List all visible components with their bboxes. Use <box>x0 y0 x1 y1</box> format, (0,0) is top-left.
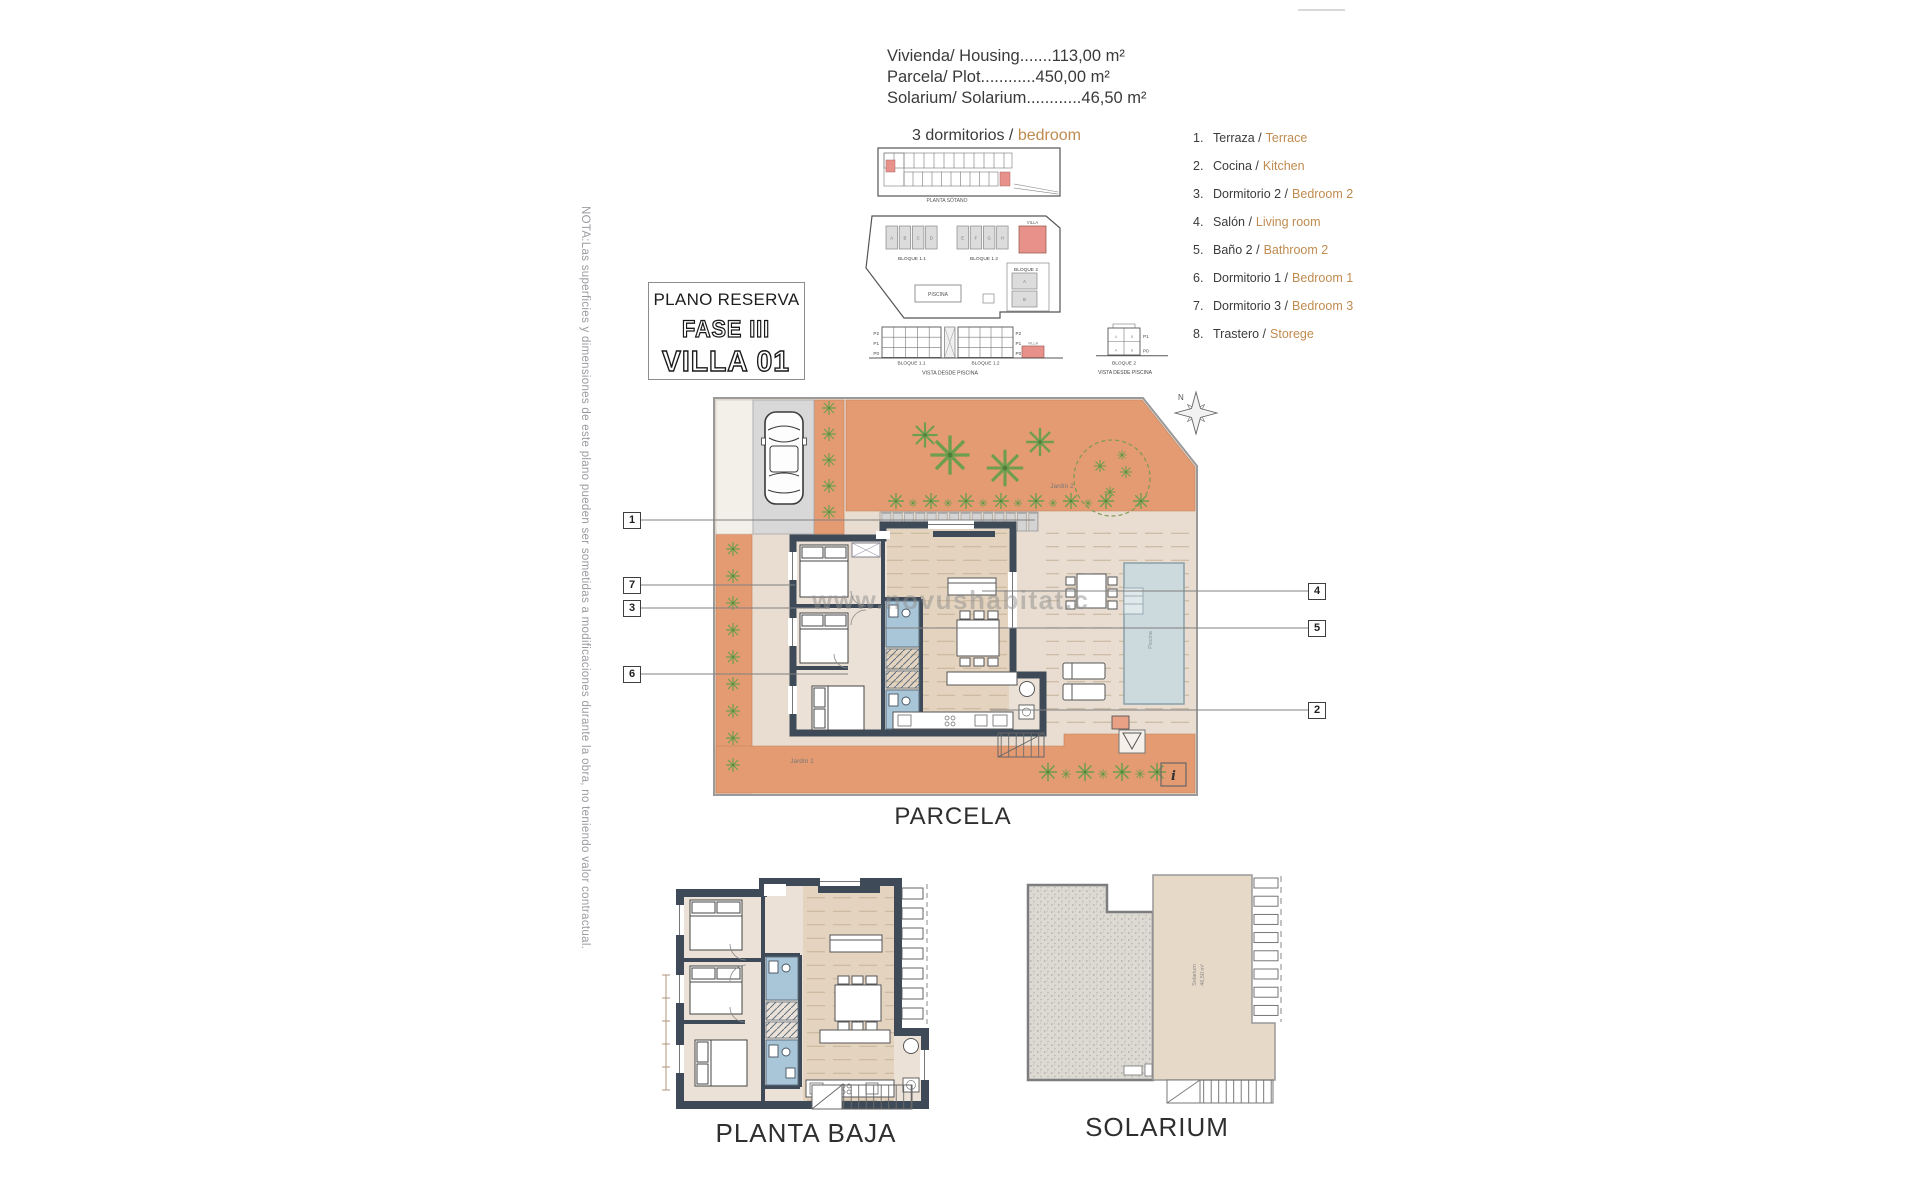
legend-en: Bathroom 2 <box>1264 243 1329 257</box>
floor-label: P1 <box>1016 341 1022 346</box>
unit-letter: B <box>1131 335 1134 339</box>
legend-es: Terraza / <box>1213 131 1262 145</box>
bloque2-label: BLOQUE 2 <box>1112 361 1136 367</box>
piscina-label: PISCINA <box>928 292 949 298</box>
plan-sheet: PLANTA SÓTANO A B C D E F G H BLOQUE <box>0 0 1920 1200</box>
bed <box>695 1040 747 1086</box>
measurement-housing: Vivienda/ Housing.......113,00 m² <box>887 46 1147 67</box>
title-outline-text: FASE III VILLA 01 <box>650 310 803 380</box>
tv-bench <box>933 531 995 537</box>
car-icon <box>762 412 807 504</box>
kitchen-island <box>947 672 1017 685</box>
unit-letter: A <box>1023 279 1026 284</box>
solarium-room-label: Solarium <box>1192 964 1198 986</box>
legend-es: Salón / <box>1213 215 1252 229</box>
pb-sofa <box>830 935 882 952</box>
legend-item: 6.Dormitorio 1 /Bedroom 1 <box>1193 271 1353 299</box>
villa-number-label: VILLA 01 <box>662 346 790 378</box>
legend-en: Storege <box>1270 327 1314 341</box>
unit-letter: A <box>1115 349 1118 353</box>
roof-area <box>1028 885 1153 1080</box>
legend-item: 5.Baño 2 /Bathroom 2 <box>1193 243 1353 271</box>
floor-label: P0 <box>1143 349 1149 354</box>
legend-num: 1. <box>1193 131 1213 145</box>
legend-es: Dormitorio 1 / <box>1213 271 1288 285</box>
legend-es: Dormitorio 3 / <box>1213 299 1288 313</box>
pool-label: Piscina <box>1148 630 1154 649</box>
planta-baja-plan <box>662 877 929 1109</box>
unit-letter: A <box>1115 335 1118 339</box>
bed <box>812 686 864 730</box>
north-compass-icon: N <box>1175 392 1217 434</box>
legend-item: 4.Salón /Living room <box>1193 215 1353 243</box>
disclaimer-note: NOTA:Las superficies y dimensiones de es… <box>579 206 591 949</box>
callout-6: 6 <box>623 666 641 683</box>
legend-item: 8.Trastero /Storege <box>1193 327 1353 355</box>
dimension-ruler <box>662 975 670 1090</box>
legend-item: 2.Cocina /Kitchen <box>1193 159 1353 187</box>
unit-letter: H <box>1001 236 1004 241</box>
unit-letter: G <box>987 236 990 241</box>
bloque11-label: BLOQUE 1.1 <box>898 256 926 262</box>
planta-baja-caption: PLANTA BAJA <box>715 1118 896 1149</box>
floor-label: P1 <box>873 341 879 346</box>
pb-kitchen-island <box>820 1030 890 1043</box>
floor-label: P1 <box>1143 334 1149 339</box>
closet <box>886 649 919 669</box>
sotano-label: PLANTA SÓTANO <box>927 197 968 204</box>
unit-letter: B <box>904 236 907 241</box>
fase-label: FASE III <box>682 316 770 343</box>
closet <box>886 671 919 688</box>
bedrooms-es: 3 dormitorios / <box>912 127 1013 144</box>
unit-letter: F <box>975 236 978 241</box>
legend-num: 6. <box>1193 271 1213 285</box>
bloque11-label: BLOQUE 1.1 <box>898 361 926 367</box>
watermark: www.novushabitat.c <box>812 585 1089 616</box>
pb-dining-table <box>835 976 881 1030</box>
legend-en: Bedroom 2 <box>1292 187 1353 201</box>
parcela-caption: PARCELA <box>894 803 1011 831</box>
house <box>788 520 1043 733</box>
room-legend: 1.Terraza /Terrace 2.Cocina /Kitchen 3.D… <box>1193 131 1353 355</box>
legend-es: Cocina / <box>1213 159 1259 173</box>
bed <box>800 613 848 663</box>
bloque12-label: BLOQUE 1.2 <box>972 361 1000 367</box>
unit-letter: E <box>961 236 964 241</box>
callout-1: 1 <box>623 512 641 529</box>
measurement-solarium: Solarium/ Solarium............46,50 m² <box>887 88 1147 109</box>
floor-label: P0 <box>873 351 879 356</box>
solarium-plan: Solarium 46,50 m² <box>1028 875 1281 1103</box>
mini-plan-sotano: PLANTA SÓTANO <box>878 148 1060 204</box>
legend-en: Kitchen <box>1263 159 1305 173</box>
legend-num: 4. <box>1193 215 1213 229</box>
solarium-caption: SOLARIUM <box>1085 1112 1229 1143</box>
villa-label: VILLA <box>1027 220 1039 225</box>
mini-plan-site: A B C D E F G H BLOQUE 1.1 BLOQUE 1.2 VI… <box>866 216 1060 318</box>
unit-letter: C <box>917 236 920 241</box>
legend-num: 5. <box>1193 243 1213 257</box>
callout-3: 3 <box>623 600 641 617</box>
villa-label: VILLA <box>1028 342 1039 346</box>
pb-tv-bench <box>818 886 880 893</box>
floor-label: P2 <box>873 331 879 336</box>
entry-strip <box>716 400 753 534</box>
callout-5: 5 <box>1308 620 1326 637</box>
measurement-plot: Parcela/ Plot............450,00 m² <box>887 67 1147 88</box>
callout-2: 2 <box>1308 702 1326 719</box>
bloque12-label: BLOQUE 1.2 <box>970 256 998 262</box>
bed <box>690 900 742 950</box>
solarium-stairs <box>1167 1080 1273 1103</box>
info-icon: i <box>1171 769 1176 784</box>
kitchen-counter <box>893 712 1013 729</box>
plan-type-label: PLANO RESERVA <box>649 290 804 310</box>
legend-es: Baño 2 / <box>1213 243 1260 257</box>
legend-item: 7.Dormitorio 3 /Bedroom 3 <box>1193 299 1353 327</box>
exterior-stairs <box>998 733 1044 757</box>
legend-en: Living room <box>1256 215 1321 229</box>
floor-label: P2 <box>1016 331 1022 336</box>
solarium-pergola <box>1254 878 1278 1015</box>
legend-item: 1.Terraza /Terrace <box>1193 131 1353 159</box>
solarium-area-label: 46,50 m² <box>1200 964 1206 986</box>
legend-es: Dormitorio 2 / <box>1213 187 1288 201</box>
vista-caption: VISTA DESDE PISCINA <box>1098 370 1152 376</box>
unit-letter: D <box>930 236 933 241</box>
legend-en: Bedroom 1 <box>1292 271 1353 285</box>
unit-letter: A <box>890 236 893 241</box>
dining-table <box>957 611 999 666</box>
callout-4: 4 <box>1308 583 1326 600</box>
legend-en: Bedroom 3 <box>1292 299 1353 313</box>
legend-item: 3.Dormitorio 2 /Bedroom 2 <box>1193 187 1353 215</box>
bedrooms-line: 3 dormitorios / bedroom <box>912 127 1081 145</box>
vista-caption: VISTA DESDE PISCINA <box>922 371 978 377</box>
legend-num: 7. <box>1193 299 1213 313</box>
title-box: PLANO RESERVA FASE III VILLA 01 <box>648 282 805 380</box>
legend-es: Trastero / <box>1213 327 1266 341</box>
jardin1-label: Jardín 1 <box>790 758 814 765</box>
north-label: N <box>1178 393 1184 402</box>
area-measurements: Vivienda/ Housing.......113,00 m² Parcel… <box>887 46 1147 109</box>
bloque2-label: BLOQUE 2 <box>1014 267 1038 273</box>
floor-label: P0 <box>1016 351 1022 356</box>
legend-en: Terrace <box>1266 131 1308 145</box>
legend-num: 8. <box>1193 327 1213 341</box>
bbq <box>1112 716 1129 729</box>
bed <box>690 966 742 1014</box>
unit-letter: B <box>1131 349 1134 353</box>
villa-highlight <box>1019 226 1046 253</box>
villa-elevation-highlight <box>1022 346 1044 358</box>
bedrooms-en: bedroom <box>1018 127 1081 144</box>
unit-letter: B <box>1023 297 1026 302</box>
legend-num: 3. <box>1193 187 1213 201</box>
mini-plan-elevations: P2 P1 P0 P2 P1 P0 VILLA BLOQUE 1.1 BLOQU… <box>869 324 1168 377</box>
jardin2-label: Jardín 2 <box>1050 483 1074 490</box>
pool: Piscina <box>1124 563 1184 704</box>
legend-num: 2. <box>1193 159 1213 173</box>
callout-7: 7 <box>623 577 641 594</box>
pb-pergola <box>902 888 923 1019</box>
outdoor-shower-marker <box>1119 730 1145 753</box>
pb-stairs <box>812 1085 912 1109</box>
